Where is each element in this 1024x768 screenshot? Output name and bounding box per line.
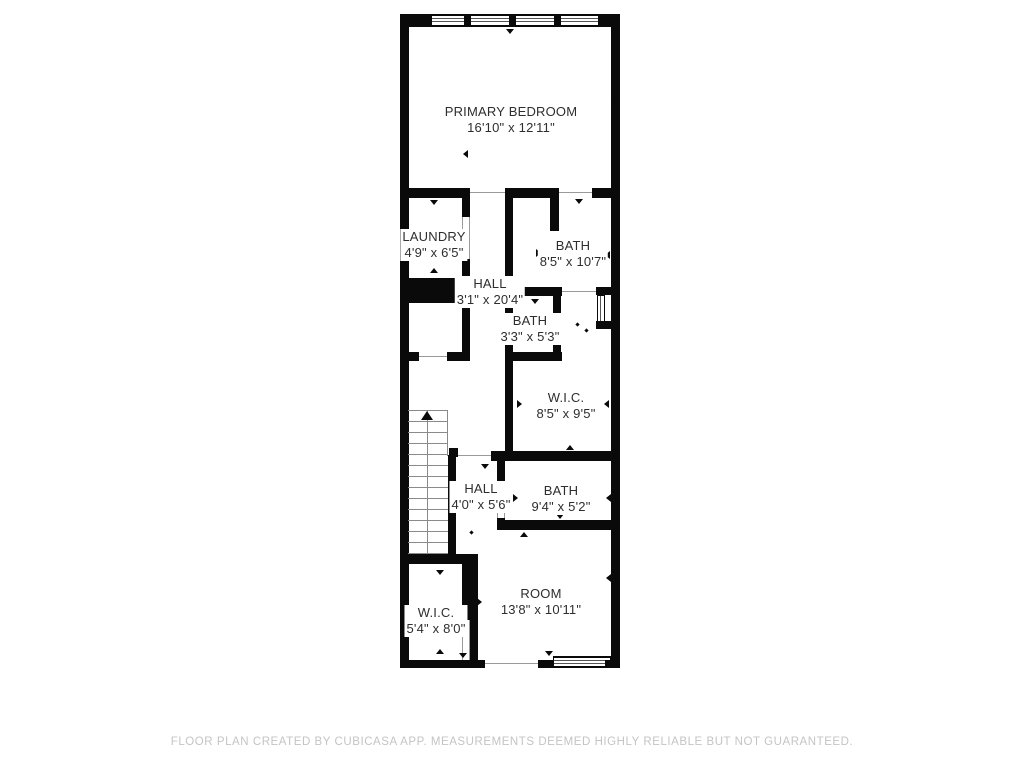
room-name: HALL: [457, 276, 523, 292]
measurement-marker: [469, 530, 473, 534]
measurement-marker: [430, 268, 438, 273]
wall-niche-stub-bottom: [596, 321, 611, 329]
opening-line: [485, 663, 538, 664]
niche-glass: [597, 295, 605, 322]
room-dims: 16'10" x 12'11": [445, 120, 578, 136]
measurement-marker: [545, 651, 553, 656]
opening-line: [562, 291, 596, 292]
measurement-marker: [436, 649, 444, 654]
wall-bath-small-right-a: [553, 296, 561, 313]
room-dims: 4'0" x 5'6": [451, 497, 510, 513]
room-name: PRIMARY BEDROOM: [445, 104, 578, 120]
wall-room-left: [470, 560, 478, 668]
room-dims: 3'3" x 5'3": [500, 329, 559, 345]
room-name: BATH: [500, 313, 559, 329]
measurement-marker: [606, 574, 611, 582]
wall-top-corner-right: [599, 14, 620, 27]
wall-wic-bottom: [491, 451, 620, 461]
staircase: [408, 410, 448, 556]
opening-line: [470, 192, 505, 193]
staircase-center-line: [427, 410, 428, 556]
room-label-bath-small: BATH 3'3" x 5'3": [498, 313, 561, 345]
window-mullion: [464, 14, 471, 27]
measurement-marker: [520, 532, 528, 537]
measurement-marker: [403, 95, 408, 103]
wall-bath-entry-stub: [550, 198, 559, 231]
measurement-marker: [481, 464, 489, 469]
wall-top-corner-left: [400, 14, 431, 27]
measurement-marker: [584, 328, 588, 332]
room-label-wic-upper: W.I.C. 8'5" x 9'5": [534, 390, 597, 422]
room-label-bath-lower: BATH 9'4" x 5'2": [529, 483, 592, 515]
room-name: BATH: [540, 238, 606, 254]
measurement-marker: [506, 29, 514, 34]
room-label-hall-upper: HALL 3'1" x 20'4": [455, 276, 525, 308]
measurement-marker: [575, 322, 579, 326]
wall-bottom-mid: [538, 660, 554, 668]
room-label-bath-primary: BATH 8'5" x 10'7": [538, 238, 608, 270]
measurement-marker: [612, 95, 617, 103]
room-label-hall-lower: HALL 4'0" x 5'6": [449, 481, 512, 513]
room-name: HALL: [451, 481, 510, 497]
measurement-marker: [513, 494, 518, 502]
room-name: ROOM: [501, 586, 581, 602]
room-label-room: ROOM 13'8" x 10'11": [499, 586, 583, 618]
wall-bottom-right: [605, 660, 620, 668]
wall-closet-bottom-b: [447, 352, 470, 361]
stairs-edge-line: [447, 410, 448, 456]
wall-bath-small-bottom: [505, 352, 562, 361]
door-opening-line: [469, 217, 470, 259]
wall-niche-stub-top: [596, 287, 611, 295]
wall-bedroom-bottom-a: [400, 188, 470, 198]
door-opening-line: [469, 620, 470, 660]
stairs-up-arrow-icon: [421, 411, 433, 420]
wall-closet-bottom-a: [400, 352, 419, 361]
opening-line: [458, 455, 491, 456]
room-name: BATH: [531, 483, 590, 499]
room-dims: 13'8" x 10'11": [501, 602, 581, 618]
measurement-marker: [566, 445, 574, 450]
wall-exterior-right: [611, 14, 620, 668]
room-dims: 5'4" x 8'0": [406, 621, 465, 637]
opening-line: [419, 356, 447, 357]
measurement-marker: [459, 653, 467, 658]
room-dims: 3'1" x 20'4": [457, 292, 523, 308]
wall-bath-lower-bottom: [497, 520, 620, 530]
measurement-marker: [575, 199, 583, 204]
room-name: LAUNDRY: [402, 229, 465, 245]
room-name: W.I.C.: [536, 390, 595, 406]
measurement-marker: [606, 494, 611, 502]
room-label-primary-bedroom: PRIMARY BEDROOM 16'10" x 12'11": [443, 104, 580, 136]
window-mullion: [554, 14, 561, 27]
measurement-marker: [463, 150, 468, 158]
measurement-marker: [517, 400, 522, 408]
room-dims: 4'9" x 6'5": [402, 245, 465, 261]
room-name: W.I.C.: [406, 605, 465, 621]
footer-disclaimer: FLOOR PLAN CREATED BY CUBICASA APP. MEAS…: [0, 736, 1024, 748]
window-mullion: [509, 14, 516, 27]
opening-line: [559, 192, 592, 193]
room-dims: 9'4" x 5'2": [531, 499, 590, 515]
measurement-marker: [604, 400, 609, 408]
wall-exterior-left: [400, 14, 409, 668]
measurement-marker: [531, 299, 539, 304]
room-label-wic-lower: W.I.C. 5'4" x 8'0": [404, 605, 467, 637]
wall-closet-right: [462, 303, 470, 354]
measurement-marker: [477, 598, 482, 606]
floor-plan: PRIMARY BEDROOM 16'10" x 12'11" LAUNDRY …: [0, 0, 1024, 768]
wall-bedroom-bottom-c: [592, 188, 620, 198]
measurement-marker: [436, 570, 444, 575]
measurement-marker: [430, 200, 438, 205]
wall-bedroom-bottom-b: [505, 188, 559, 198]
measurement-marker: [403, 150, 408, 158]
window-bottom: [553, 656, 611, 668]
wall-laundry-right-a: [462, 188, 470, 217]
room-dims: 8'5" x 9'5": [536, 406, 595, 422]
room-label-laundry: LAUNDRY 4'9" x 6'5": [400, 229, 467, 261]
room-dims: 8'5" x 10'7": [540, 254, 606, 270]
